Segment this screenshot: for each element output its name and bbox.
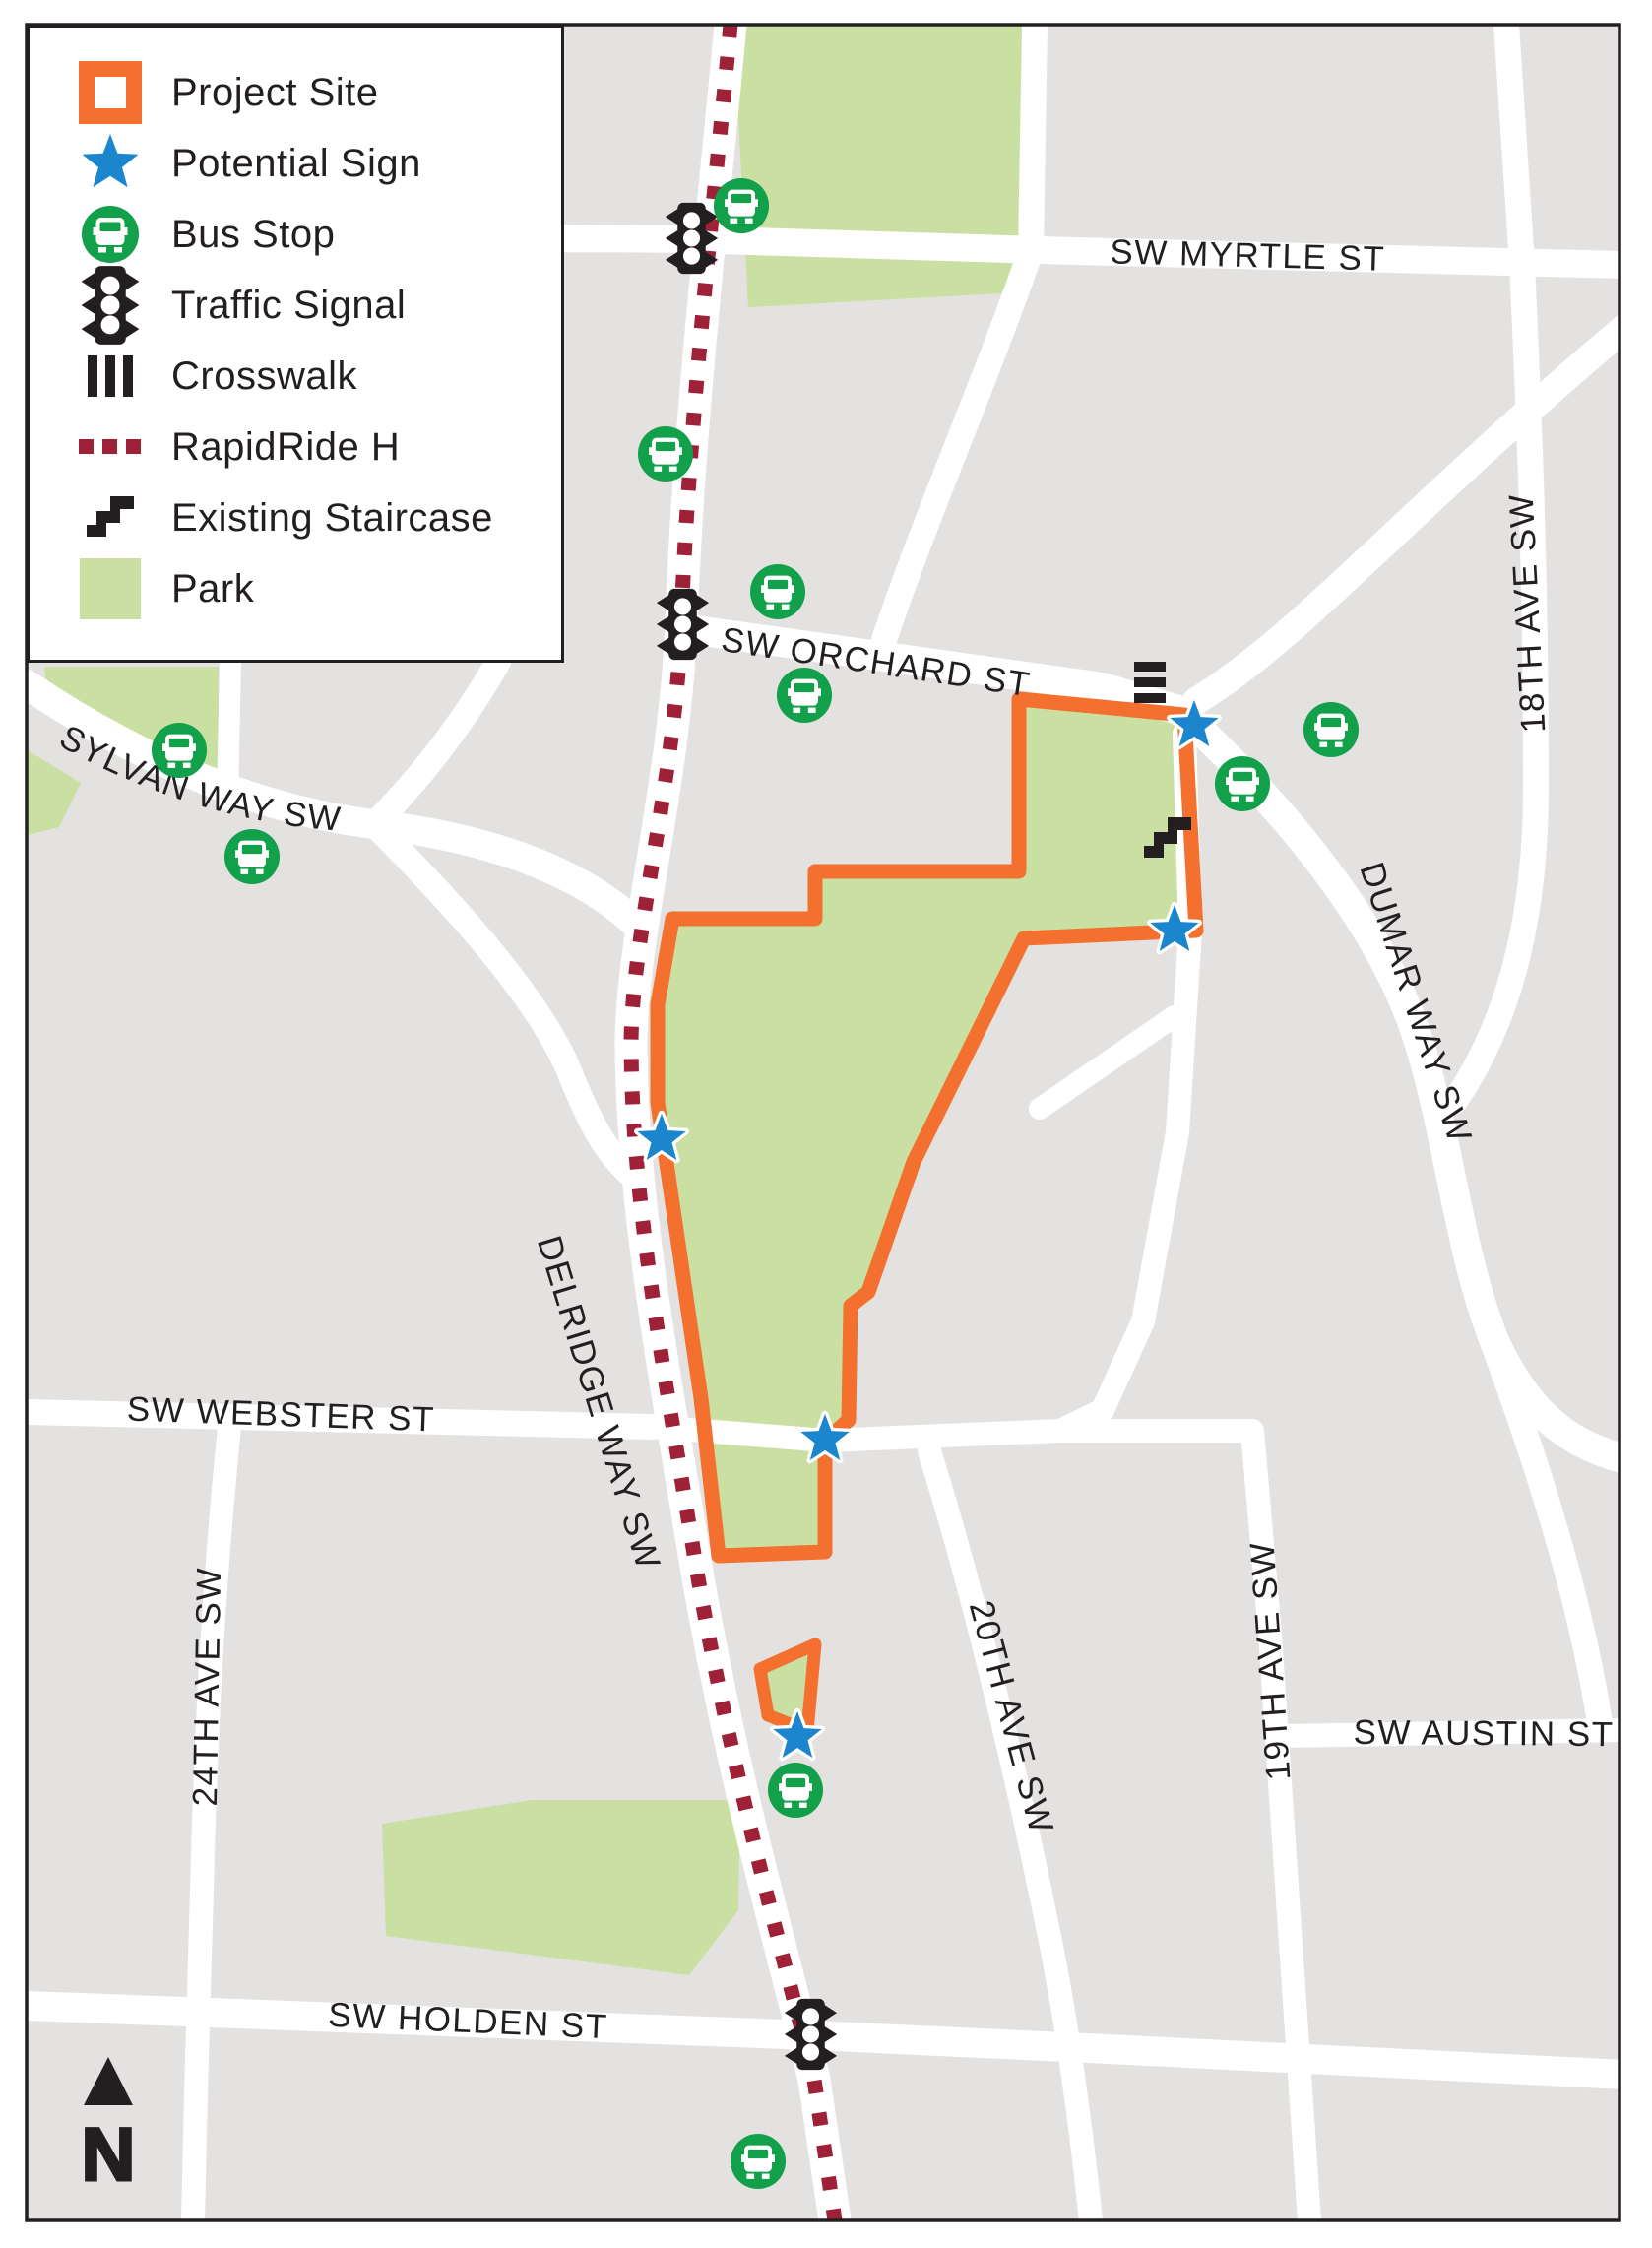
rapidride-h-line-icon — [75, 439, 146, 455]
legend-item-project-site: Project Site — [30, 57, 561, 128]
legend-label: Traffic Signal — [171, 284, 406, 328]
bus-stop-icon — [638, 426, 693, 482]
bus-stop-icon — [768, 1763, 823, 1818]
legend-label: RapidRide H — [171, 425, 400, 470]
bus-stop-icon — [731, 2134, 786, 2189]
traffic-signal-icon — [785, 1999, 837, 2070]
crosswalk-icon — [1134, 662, 1166, 703]
legend-item-rapidride-h: RapidRide H — [30, 412, 561, 482]
traffic-signal-icon — [657, 589, 709, 660]
legend-label: Bus Stop — [171, 213, 335, 257]
legend-item-crosswalk: Crosswalk — [30, 341, 561, 412]
staircase-icon — [75, 492, 146, 544]
legend-item-park: Park — [30, 553, 561, 624]
park-area — [733, 25, 1024, 307]
bus-stop-icon — [714, 178, 769, 233]
north-arrow-label: N — [82, 2113, 136, 2197]
bus-stop-icon — [750, 564, 805, 619]
park-swatch-icon — [75, 558, 146, 619]
legend-label: Potential Sign — [171, 142, 421, 186]
legend-label: Existing Staircase — [171, 496, 493, 541]
traffic-signal-icon — [75, 264, 146, 347]
legend-label: Park — [171, 567, 254, 611]
legend-item-existing-staircase: Existing Staircase — [30, 482, 561, 553]
bus-stop-icon — [152, 723, 207, 778]
site-map-page: SW MYRTLE ST SW ORCHARD ST SYLVAN WAY SW… — [0, 0, 1652, 2248]
project-site-icon — [75, 61, 146, 124]
street-label-24th-ave-sw: 24TH AVE SW — [186, 1567, 228, 1807]
legend-item-bus-stop: Bus Stop — [30, 199, 561, 270]
street-label-sw-myrtle-st: SW MYRTLE ST — [1110, 232, 1386, 278]
legend-label: Project Site — [171, 71, 379, 115]
legend-item-traffic-signal: Traffic Signal — [30, 270, 561, 341]
potential-sign-star-icon — [75, 131, 146, 196]
road-minor — [227, 661, 230, 800]
traffic-signal-icon — [666, 203, 718, 274]
map-legend: Project Site Potential Sign Bus Stop Tra… — [27, 25, 564, 663]
bus-stop-icon — [75, 205, 146, 264]
bus-stop-icon — [777, 668, 832, 723]
street-label-sw-austin-st: SW AUSTIN ST — [1353, 1713, 1614, 1754]
legend-label: Crosswalk — [171, 354, 357, 399]
bus-stop-icon — [1303, 702, 1359, 757]
legend-item-potential-sign: Potential Sign — [30, 128, 561, 199]
bus-stop-icon — [1215, 756, 1270, 811]
crosswalk-icon — [75, 355, 146, 397]
road-webster-connector — [652, 1427, 1252, 1441]
bus-stop-icon — [224, 829, 280, 884]
